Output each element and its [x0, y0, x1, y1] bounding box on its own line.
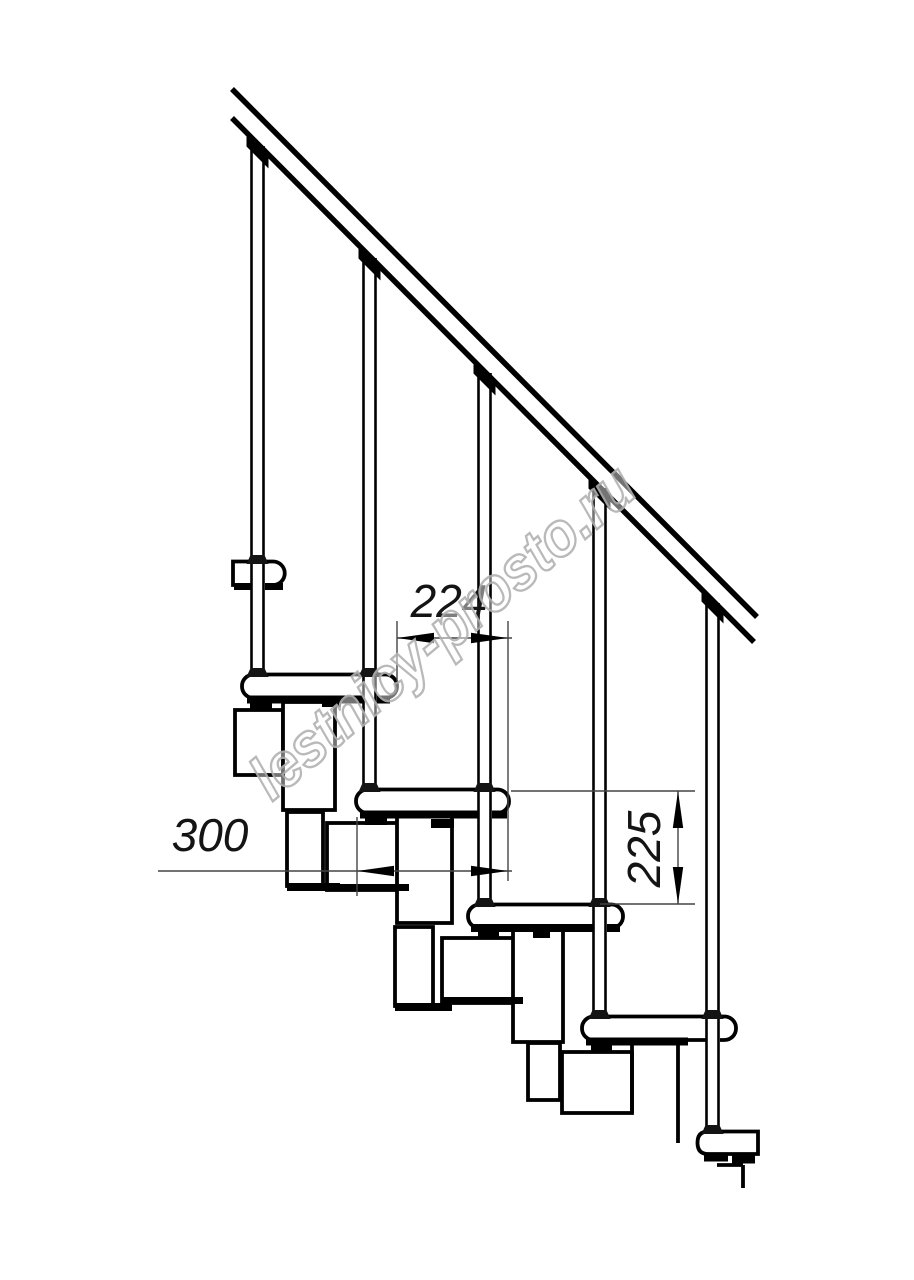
bottom-cut-lines: [717, 1165, 743, 1188]
module-box-2: [397, 813, 452, 923]
under-strip: [732, 1154, 755, 1164]
dimension-225-label: 225: [618, 810, 670, 888]
baluster-4: [593, 487, 607, 1019]
connector-tab: [591, 1043, 612, 1052]
base-plate: [395, 1003, 452, 1011]
module-box-3: [513, 930, 563, 1042]
collar: [474, 783, 496, 792]
base-plate: [327, 884, 409, 891]
handrail-top-line: [232, 89, 757, 617]
watermark-text: lestnicy-prosto.ru: [237, 451, 649, 812]
collar: [702, 1125, 724, 1134]
collar: [247, 555, 269, 564]
module-neck-2: [395, 927, 433, 1006]
staircase-drawing: 224 300 225 lestnicy-prosto.ru: [0, 0, 914, 1280]
connector-tab: [431, 819, 454, 828]
collar: [589, 898, 611, 907]
arrow-down: [673, 867, 683, 904]
collar: [359, 783, 381, 792]
collar: [702, 1010, 724, 1019]
collar: [474, 898, 496, 907]
arrow-up: [673, 791, 683, 828]
connector-tab: [533, 930, 550, 938]
connector-tab: [365, 817, 387, 825]
module-bracket-2: [327, 823, 403, 890]
staircase-drawing-page: 224 300 225 lestnicy-prosto.ru: [0, 0, 914, 1280]
module-neck-1: [287, 812, 323, 886]
collar: [589, 1010, 611, 1019]
step-5-partial: [698, 1132, 759, 1155]
connector-tab: [478, 930, 499, 938]
connector-tab: [250, 702, 272, 710]
dimension-300-label: 300: [172, 809, 249, 861]
under-strip: [704, 1153, 728, 1162]
collar: [247, 668, 269, 677]
module-bracket-4: [562, 1052, 632, 1113]
module-neck-3: [528, 1043, 560, 1100]
baluster-5: [706, 602, 720, 1134]
module-bracket-3: [442, 938, 518, 1003]
baluster-1: [251, 145, 265, 677]
module-box-4-cut: [632, 1042, 678, 1143]
base-plate: [442, 997, 523, 1004]
